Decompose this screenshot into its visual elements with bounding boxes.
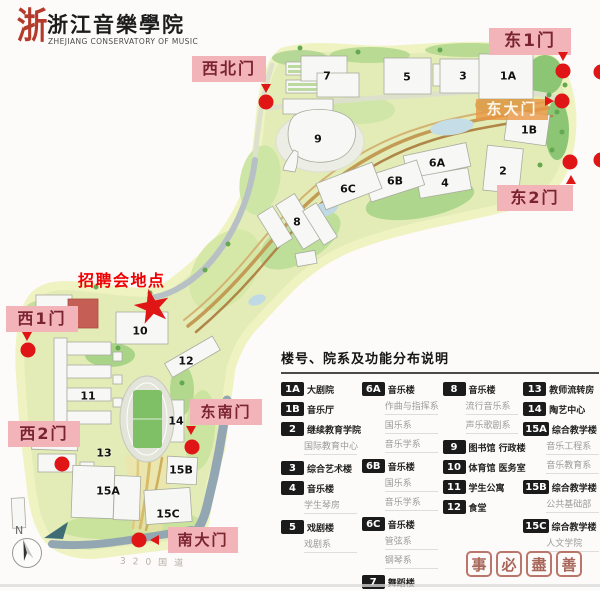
gate-label-east2: 东2门 (497, 185, 573, 211)
logo-subtitle: ZHEJIANG CONSERVATORY OF MUSIC (48, 37, 198, 46)
map-building-label-4: 4 (441, 177, 449, 190)
legend-item-4: 4音乐楼 学生琴房 (281, 481, 357, 514)
legend-item-15b: 15B综合教学楼 公共基础部 (523, 480, 599, 513)
legend-department: 戏剧系 (304, 534, 357, 553)
compass-north-label: N (15, 524, 23, 537)
building-badge: 10 (443, 460, 466, 474)
gate-dot-east1 (556, 64, 571, 79)
map-building-label-9: 9 (314, 133, 322, 146)
legend-department: 流行音乐系 (466, 396, 519, 415)
bottom-divider (0, 584, 600, 587)
legend-item-12: 12食堂 (443, 500, 519, 514)
sports-field (120, 376, 174, 462)
gate-label-northwest: 西北门 (192, 56, 266, 82)
legend-building-name: 继续教育学院 (307, 423, 361, 436)
legend-department: 公共基础部 (546, 494, 599, 513)
map-building-label-15c: 15C (156, 508, 179, 521)
legend-building-name: 音乐楼 (388, 518, 415, 531)
legend-building-name: 大剧院 (307, 383, 334, 396)
map-building-label-6b: 6B (387, 175, 403, 188)
legend-item-6c: 6C音乐楼 管弦系 钢琴系 (362, 517, 438, 569)
legend-building-name: 综合艺术楼 (307, 462, 352, 475)
legend-building-name: 综合教学楼 (552, 481, 597, 494)
legend-building-name: 食堂 (469, 501, 487, 514)
building-badge: 13 (523, 382, 546, 396)
legend-department: 学生琴房 (304, 495, 357, 514)
legend-building-name: 图书馆 行政楼 (469, 441, 526, 454)
gate-label-east-main: 东大门 (476, 99, 548, 120)
legend-item-5: 5戏剧楼 戏剧系 (281, 520, 357, 553)
gate-label-west1: 西1门 (6, 306, 78, 332)
building-badge: 15A (523, 422, 549, 436)
building-badge: 15C (523, 519, 548, 533)
seal-watermark-char: 善 (556, 551, 582, 577)
map-building-label-6a: 6A (429, 157, 445, 170)
legend-building-name: 综合教学楼 (552, 423, 597, 436)
legend-item-2: 2继续教育学院 国际教育中心 (281, 422, 357, 455)
building-badge: 6A (362, 382, 385, 396)
gate-label-east1: 东1门 (489, 28, 571, 55)
pointer-triangle-southeast (186, 426, 196, 435)
gate-dot-west1 (21, 343, 36, 358)
legend-building-name: 陶艺中心 (549, 403, 585, 416)
building-badge: 12 (443, 500, 466, 514)
gate-label-south-main: 南大门 (168, 527, 238, 553)
building-badge: 15B (523, 480, 549, 494)
seal-watermark-char: 盡 (526, 551, 552, 577)
legend-department: 钢琴系 (385, 550, 438, 569)
legend-building-name: 音乐楼 (469, 383, 496, 396)
legend-department: 音乐学系 (385, 492, 438, 511)
legend-item-15a: 15A综合教学楼 音乐工程系 音乐教育系 (523, 422, 599, 474)
building-badge: 1B (281, 402, 304, 416)
legend-department: 音乐学系 (385, 434, 438, 453)
gate-dot-east2 (563, 155, 578, 170)
legend-department: 国际教育中心 (304, 436, 357, 455)
legend-title: 楼号、院系及功能分布说明 (281, 348, 599, 374)
legend-department: 人文学院 (546, 533, 599, 552)
pointer-triangle-south-main (150, 535, 159, 545)
legend-column-1: 1A大剧院 1B音乐厅 2继续教育学院 国际教育中心 3综合艺术楼 4音乐楼 学… (281, 382, 357, 591)
map-building-label-3: 3 (459, 70, 467, 83)
legend-building-name: 音乐楼 (388, 460, 415, 473)
legend-item-8: 8音乐楼 流行音乐系 声乐歌剧系 (443, 382, 519, 434)
building-badge: 14 (523, 402, 546, 416)
legend-building-name: 戏剧楼 (307, 521, 334, 534)
pointer-triangle-northwest (261, 84, 271, 93)
legend-item-14: 14陶艺中心 (523, 402, 599, 416)
legend-building-name: 学生公寓 (469, 481, 505, 494)
map-building-label-15b: 15B (169, 464, 193, 477)
legend-department: 声乐歌剧系 (466, 415, 519, 434)
legend-item-13: 13教师流转房 (523, 382, 599, 396)
map-building-label-7: 7 (323, 70, 331, 83)
legend-item-6b: 6B音乐楼 国乐系 音乐学系 (362, 459, 438, 511)
building-badge: 3 (281, 461, 304, 475)
legend-department: 音乐工程系 (546, 436, 599, 455)
legend-building-name: 综合教学楼 (552, 520, 597, 533)
legend-item-3: 3综合艺术楼 (281, 461, 357, 475)
seal-watermark-char: 必 (496, 551, 522, 577)
seal-watermark-char: 事 (466, 551, 492, 577)
map-building-label-6c: 6C (340, 183, 356, 196)
gate-label-southeast: 东南门 (190, 399, 262, 425)
map-building-label-11: 11 (80, 390, 95, 403)
seal-watermark: 事 必 盡 善 (466, 551, 582, 577)
legend-item-15c: 15C综合教学楼 人文学院 (523, 519, 599, 552)
pointer-triangle-east-main (545, 96, 554, 106)
road-name-label: 320国道 (120, 554, 191, 569)
map-building-label-1a: 1A (500, 70, 516, 83)
pointer-triangle-west1 (22, 332, 32, 341)
legend-department: 管弦系 (385, 531, 438, 550)
legend-item-1b: 1B音乐厅 (281, 402, 357, 416)
building-badge: 4 (281, 481, 304, 495)
legend-item-6a: 6A音乐楼 作曲与指挥系 国乐系 音乐学系 (362, 382, 438, 453)
building-badge: 6B (362, 459, 385, 473)
pointer-triangle-east1 (558, 52, 568, 61)
map-building-label-8: 8 (293, 216, 301, 229)
gate-dot-south-main (132, 533, 147, 548)
building-badge: 1A (281, 382, 304, 396)
legend-building-name: 音乐楼 (388, 383, 415, 396)
legend-department: 音乐教育系 (546, 455, 599, 474)
legend-item-7: 7舞蹈楼 舞蹈系 (362, 575, 438, 591)
legend-department: 国乐系 (385, 415, 438, 434)
gate-dot-east-main (555, 94, 570, 109)
logo-title: 浙江音樂學院 (47, 9, 185, 39)
building-badge: 11 (443, 480, 466, 494)
legend-department: 作曲与指挥系 (385, 396, 438, 415)
legend-department: 国乐系 (385, 473, 438, 492)
legend-column-2: 6A音乐楼 作曲与指挥系 国乐系 音乐学系 6B音乐楼 国乐系 音乐学系 6C音… (362, 382, 438, 591)
building-badge: 8 (443, 382, 466, 396)
gate-label-west2: 西2门 (8, 421, 80, 447)
legend-item-9: 9图书馆 行政楼 (443, 440, 519, 454)
building-badge: 9 (443, 440, 466, 454)
gate-dot-west2 (55, 457, 70, 472)
pointer-triangle-east2 (566, 175, 576, 184)
map-building-label-14: 14 (168, 415, 183, 428)
map-building-label-5: 5 (403, 71, 411, 84)
gate-dot-northwest (259, 95, 274, 110)
map-building-label-12: 12 (178, 355, 193, 368)
building-badge: 2 (281, 422, 304, 436)
logo-seal-icon: 浙 (17, 6, 48, 46)
map-building-label-15a: 15A (96, 485, 120, 498)
legend-building-name: 音乐楼 (307, 482, 334, 495)
legend-building-name: 音乐厅 (307, 403, 334, 416)
legend-item-1a: 1A大剧院 (281, 382, 357, 396)
map-building-label-13: 13 (96, 447, 111, 460)
map-building-label-2: 2 (499, 165, 507, 178)
building-badge: 6C (362, 517, 385, 531)
legend-building-name: 教师流转房 (549, 383, 594, 396)
campus-map-screenshot: 浙 浙江音樂學院 ZHEJIANG CONSERVATORY OF MUSIC … (0, 0, 600, 591)
legend-item-11: 11学生公寓 (443, 480, 519, 494)
building-badge: 5 (281, 520, 304, 534)
map-building-label-1b: 1B (521, 124, 537, 137)
legend-item-10: 10体育馆 医务室 (443, 460, 519, 474)
legend-building-name: 体育馆 医务室 (469, 461, 526, 474)
gate-dot-southeast (185, 440, 200, 455)
